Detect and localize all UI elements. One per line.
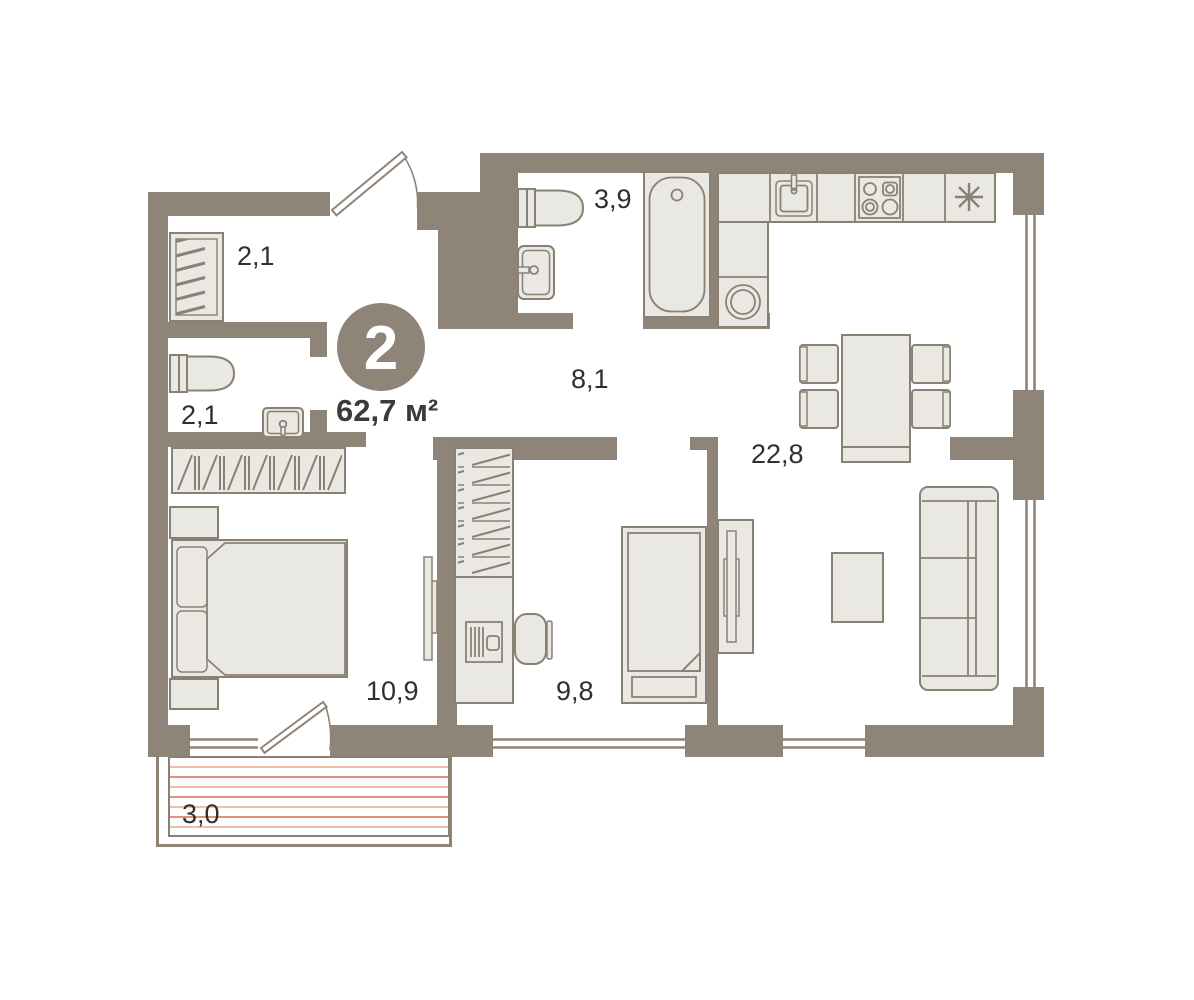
label-entry-closet: 2,1 xyxy=(237,241,275,271)
chair-backrest xyxy=(943,347,950,381)
entrance-door-arc xyxy=(405,158,418,208)
dining-table xyxy=(842,335,910,447)
single-bed xyxy=(622,527,706,703)
wall-bottom-left-corner xyxy=(148,725,190,757)
bathroom-toilet xyxy=(518,189,583,227)
kitchen-counter xyxy=(718,173,995,222)
floor-plan-page: 2 62,7 м² 2,1 2,1 3,9 8,1 22,8 10,9 9,8 … xyxy=(0,0,1194,1000)
pillow xyxy=(177,611,207,672)
tv-bedroom xyxy=(424,557,437,660)
desk-chair xyxy=(515,614,552,664)
wall-living-stub xyxy=(690,437,718,450)
wall-bottom-midright xyxy=(685,725,783,757)
pillow xyxy=(177,547,207,607)
entrance-door xyxy=(332,152,418,215)
window-study xyxy=(493,740,685,748)
label-bedroom: 10,9 xyxy=(366,676,419,706)
chair-backrest xyxy=(800,392,807,426)
double-bed xyxy=(170,507,347,709)
study-wardrobe xyxy=(455,448,513,577)
balcony-door-leaf xyxy=(261,702,327,753)
rooms-count: 2 xyxy=(364,314,398,383)
label-hallway: 8,1 xyxy=(571,364,609,394)
kitchen-column xyxy=(718,222,768,327)
wall-left xyxy=(148,192,168,757)
hanger-rail xyxy=(175,450,342,491)
chair-backrest xyxy=(943,392,950,426)
label-bathroom: 3,9 xyxy=(594,184,632,214)
wall-top-left xyxy=(148,192,330,216)
desk xyxy=(455,577,513,703)
window-right-upper xyxy=(1027,215,1035,390)
wc-sink xyxy=(263,408,303,437)
window-living xyxy=(783,740,865,748)
nightstand xyxy=(170,679,218,709)
summary-badge: 2 62,7 м² xyxy=(336,303,438,428)
floor-plan: 2 62,7 м² 2,1 2,1 3,9 8,1 22,8 10,9 9,8 … xyxy=(0,0,1194,1000)
hanger-rail xyxy=(458,452,510,574)
label-balcony: 3,0 xyxy=(182,799,220,829)
wc-toilet xyxy=(170,355,234,392)
bedroom-rail-wardrobe xyxy=(172,448,345,493)
total-area: 62,7 м² xyxy=(336,393,438,428)
wall-top-right xyxy=(480,153,1044,173)
wall-study-living-divider xyxy=(707,450,718,727)
bathtub xyxy=(644,172,710,317)
wall-entry-block-upper xyxy=(417,192,480,230)
chair-backrest xyxy=(800,347,807,381)
wall-bathroom-west xyxy=(480,153,518,329)
wall-closet-wc-divider xyxy=(148,322,327,338)
shoe-rack-slats xyxy=(176,239,217,315)
label-wc: 2,1 xyxy=(181,400,219,430)
label-study: 9,8 xyxy=(556,676,594,706)
bathroom-sink xyxy=(518,246,554,299)
sofa xyxy=(920,487,998,690)
kitchen-sink xyxy=(776,175,812,216)
wall-bottom-right xyxy=(865,725,1044,757)
wall-right-mid xyxy=(1013,390,1044,500)
tv-screen xyxy=(424,557,432,660)
nightstand xyxy=(170,507,218,538)
dining-bench xyxy=(842,447,910,462)
balcony-door-arc xyxy=(326,707,331,750)
fridge-snowflake-icon xyxy=(955,183,983,211)
coffee-table xyxy=(832,553,883,622)
balcony-door xyxy=(261,702,331,753)
window-right-lower xyxy=(1027,500,1035,687)
wall-bathroom-south-west xyxy=(480,313,573,329)
window-bedroom-balcony xyxy=(190,740,258,748)
wall-right-stub xyxy=(950,437,1013,460)
entry-closet-wardrobe xyxy=(170,233,223,321)
chair-backrest xyxy=(547,621,552,659)
tv-console-living xyxy=(718,520,753,653)
wall-entry-block-lower xyxy=(438,230,480,329)
wall-bottom-midleft xyxy=(330,725,493,757)
wall-wc-east-upper xyxy=(310,322,327,357)
wall-right-top xyxy=(1013,153,1044,215)
dining-set xyxy=(800,335,950,462)
wall-bedroom-north xyxy=(148,432,366,447)
label-kitchen-living: 22,8 xyxy=(751,439,804,469)
entrance-door-leaf xyxy=(332,152,407,215)
tv-screen xyxy=(727,531,736,642)
